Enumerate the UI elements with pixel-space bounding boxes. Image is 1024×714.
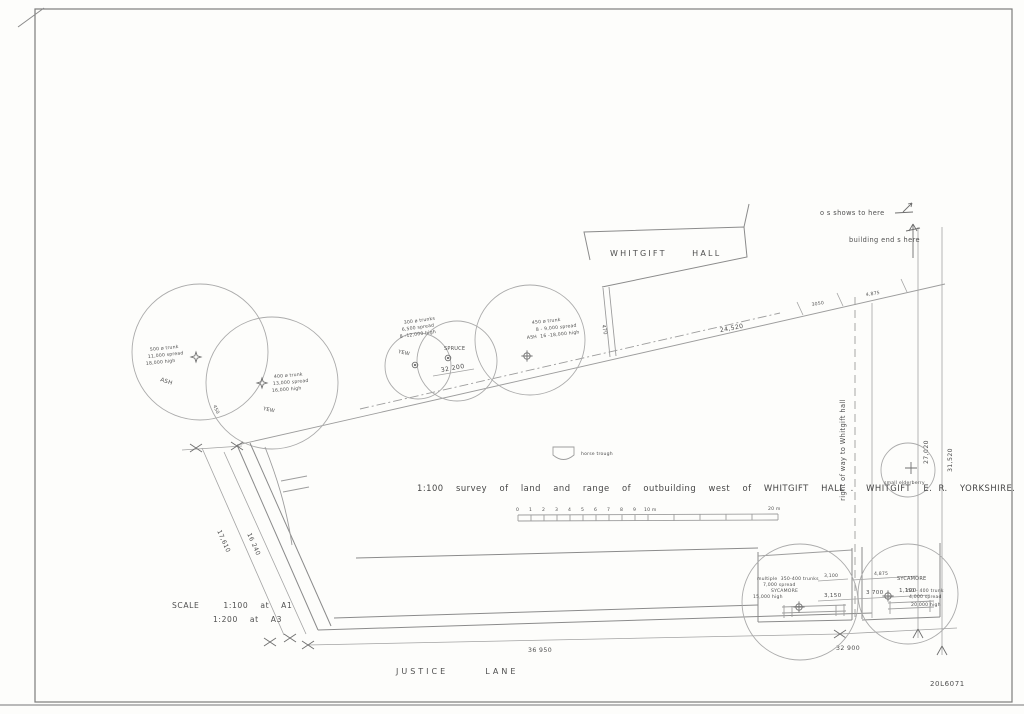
dim-17610: 17,610 (215, 529, 231, 554)
dim-32900: 32 900 (836, 645, 860, 652)
tree-spec: SYCAMORE (771, 588, 798, 594)
tree-spec: 4,000 spread (909, 594, 942, 600)
parcel-boundary (237, 443, 872, 630)
dim-3700: 3 700 (866, 590, 884, 596)
tree-spec: 15,000 high (753, 594, 783, 600)
survey-drawing-sheet: WHITGIFT HALL 470 24,520 3050 4,875 500 … (0, 0, 1024, 714)
scale-tick: 8 (620, 507, 623, 513)
scale-tick: 10 m (644, 507, 657, 513)
road-label: JUSTICE LANE (395, 667, 518, 676)
scale-tick: 5 (581, 507, 584, 513)
scale-note-line1: SCALE 1:100 at A1 (172, 601, 292, 610)
bottom-dimensions: 36 950 32 900 (264, 628, 957, 654)
tree-trunk-marker (882, 590, 893, 601)
dim-3150: 3,150 (824, 593, 842, 599)
tree-name: YEW (397, 349, 411, 358)
tree-name: SYCAMORE (897, 576, 926, 582)
scale-tick: 6 (594, 507, 597, 513)
os-shows-note: o s shows to here (820, 209, 885, 217)
dim-3100: 3,100 (824, 573, 838, 579)
dim-3050: 3050 (811, 300, 824, 308)
tree-spec: 400 ø trunk (274, 371, 303, 380)
tree-spec: 350 - 400 trunk (905, 588, 944, 594)
survey-drawing: WHITGIFT HALL 470 24,520 3050 4,875 500 … (0, 0, 1024, 714)
bench-detail (782, 604, 846, 618)
scale-tick: 2 (542, 507, 545, 513)
scale-tick: 9 (633, 507, 636, 513)
tree-ash-large: 500 ø trunk 11,000 spread 18,000 high AS… (132, 284, 268, 420)
tree-name: YEW (262, 406, 276, 415)
tree-spec: 7,000 spread (763, 582, 796, 588)
tree-spec: 450 ø trunk (532, 317, 561, 326)
top-right-notes: o s shows to here building end s here (820, 203, 920, 258)
tree-yew-spruce-cluster: 300 ø trunks 6,500 spread 8 -12,000 high… (385, 316, 497, 401)
dim-36950: 36 950 (528, 647, 552, 654)
tree-spec: multiple 350-400 trunks (757, 576, 819, 582)
tree-name: SPRUCE (444, 346, 465, 352)
dim-31520: 31,520 (947, 448, 954, 472)
tree-spec: 20,000 high (911, 602, 941, 608)
horse-trough-label: horse trough (581, 451, 613, 457)
scale-tick: 20 m (768, 506, 781, 512)
tree-sycamore-group: multiple 350-400 trunks 7,000 spread SYC… (742, 544, 858, 660)
scale-tick: 4 (568, 507, 571, 513)
scale-tick: 1 (529, 507, 532, 513)
whitgift-hall-label: WHITGIFT HALL (610, 249, 721, 258)
tree-trunk-marker (905, 462, 917, 474)
building-ends-note: building end s here (849, 236, 920, 244)
hall-gate-dimension: 470 (600, 287, 616, 357)
dim-470: 470 (600, 324, 608, 335)
dim-4875: 4,875 (874, 571, 888, 577)
whitgift-hall-outline: WHITGIFT HALL (584, 204, 749, 287)
tree-trunk-marker (191, 352, 201, 362)
scale-tick: 0 (516, 507, 519, 513)
tree-trunk-marker (521, 350, 532, 361)
scale-note-line2: 1:200 at A3 (213, 615, 282, 624)
tree-spec: ASH 16 -18,000 high (527, 329, 580, 341)
scale-bar: 0 1 2 3 4 5 6 7 8 9 10 m 20 m (516, 506, 781, 521)
tree-yew-large: 400 ø trunk 13,000 spread 16,000 high YE… (206, 317, 338, 449)
tree-trunk-marker (793, 601, 804, 612)
scale-tick: 7 (607, 507, 610, 513)
scale-tick: 3 (555, 507, 558, 513)
horse-trough: horse trough (553, 447, 613, 460)
dim-450: 450 (211, 404, 220, 415)
dim-27020: 27,020 (923, 440, 930, 464)
tree-name: ASH (159, 377, 173, 387)
drawing-title: 1:100 survey of land and range of outbui… (417, 483, 1015, 493)
os-marker-icon (895, 203, 913, 213)
drawing-number: 20L6071 (930, 680, 965, 688)
dim-4875-top: 4,875 (865, 290, 880, 298)
